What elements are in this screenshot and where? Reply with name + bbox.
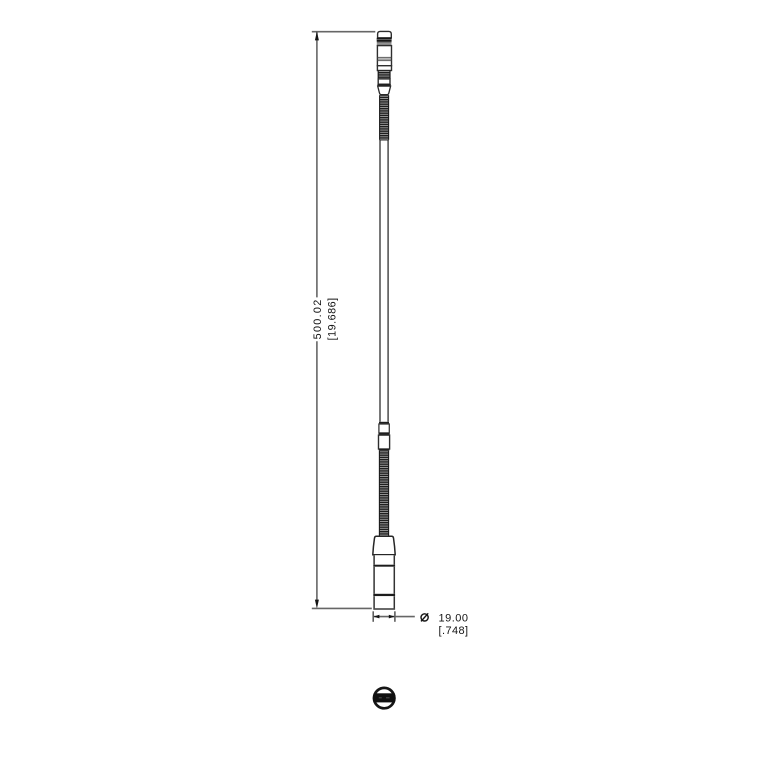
svg-text:19.00: 19.00	[438, 613, 468, 625]
svg-text:[19.686]: [19.686]	[327, 297, 339, 340]
svg-text:500.02: 500.02	[312, 298, 324, 339]
svg-text:[.748]: [.748]	[439, 625, 469, 637]
